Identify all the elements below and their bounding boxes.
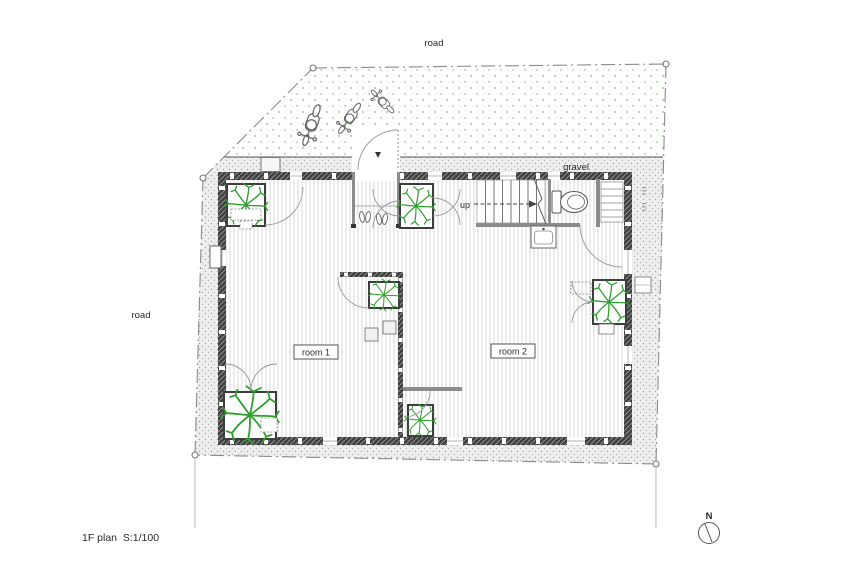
gravel-label: gravel (563, 162, 589, 173)
up-label: up (460, 200, 470, 210)
stepping-stone (261, 158, 280, 172)
lawn-area (224, 64, 666, 157)
furniture-desk (231, 209, 261, 220)
road-label-top: road (424, 38, 443, 49)
furniture-table (599, 324, 614, 334)
building (210, 171, 632, 445)
planter-bench (261, 418, 277, 432)
plan-title: 1F plan S:1/100 (82, 532, 159, 544)
bay-window (210, 246, 221, 268)
cabinet (601, 182, 623, 222)
furniture-stool (365, 328, 378, 341)
room1-label: room 1 (302, 348, 330, 358)
toilet-icon (552, 191, 588, 213)
ac-unit (635, 277, 651, 293)
room1-label-box: room 1 (294, 345, 338, 359)
north-label: N (706, 511, 713, 522)
room2-label: room 2 (499, 347, 527, 357)
stairs (474, 179, 546, 224)
furniture-stool (383, 321, 396, 334)
sink-icon (531, 226, 556, 248)
floor-plan-canvas: room 1 room 2 road road gravel up 1F pla… (0, 0, 860, 573)
road-label-left: road (131, 310, 150, 321)
north-indicator: N (699, 511, 720, 544)
north-needle (705, 524, 712, 542)
room2-label-box: room 2 (491, 344, 535, 358)
entrance-gate (352, 126, 400, 172)
furniture-chair (240, 221, 252, 229)
